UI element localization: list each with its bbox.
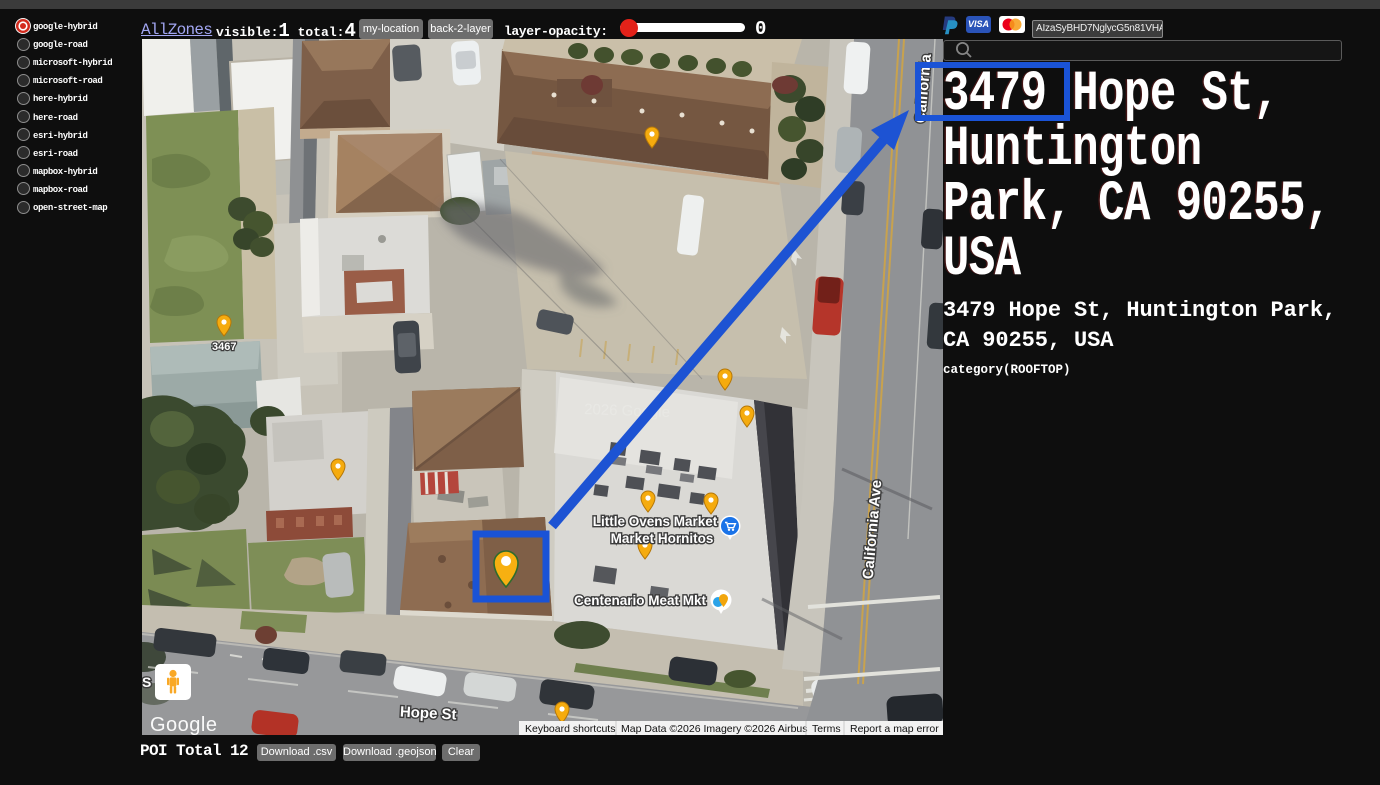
svg-text:Google: Google: [150, 714, 218, 735]
svg-text:Terms: Terms: [812, 723, 841, 735]
svg-text:Map Data ©2026 Imagery ©2026 A: Map Data ©2026 Imagery ©2026 Airbus: [621, 723, 808, 735]
svg-text:Market Hornitos: Market Hornitos: [611, 531, 714, 546]
svg-text:Centenario Meat Mkt: Centenario Meat Mkt: [574, 593, 707, 608]
svg-text:Hope St: Hope St: [399, 704, 456, 724]
svg-text:3467: 3467: [212, 341, 236, 353]
svg-text:Little Ovens Market: Little Ovens Market: [593, 514, 718, 529]
svg-text:Keyboard shortcuts: Keyboard shortcuts: [525, 723, 615, 735]
svg-text:S: S: [142, 674, 151, 690]
svg-text:Report a map error: Report a map error: [850, 723, 939, 735]
